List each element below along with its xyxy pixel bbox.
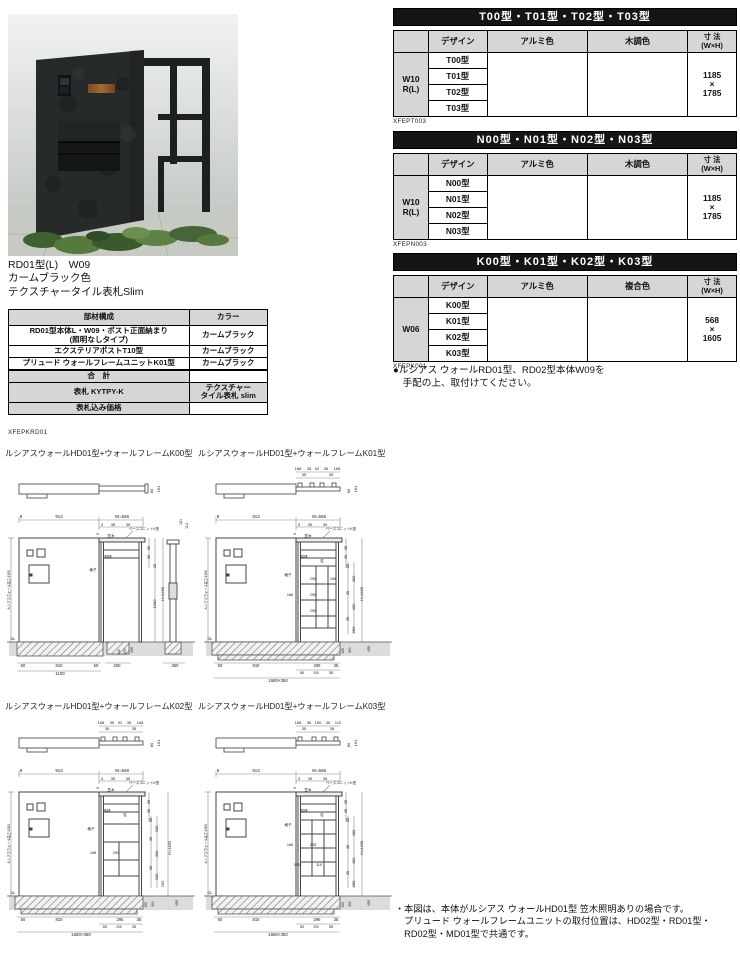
dimension-label: 35 [346, 564, 350, 568]
dimension-label: 913 [252, 768, 260, 773]
frame-elevation [99, 792, 145, 896]
dimension-label: 92 [118, 720, 123, 725]
design-cell: T03型 [428, 101, 487, 117]
dimension-label: 50 [300, 670, 305, 675]
stub-header [394, 31, 429, 53]
wall-elevation [216, 538, 296, 642]
catalog-page: RD01型(L) W09 カームブラック色 テクスチャータイル表札Slim 部材… [0, 0, 740, 980]
dimension-label: 35 [308, 522, 313, 527]
dimension-label: GL [207, 891, 212, 895]
spec-table-t: T00型・T01型・T02型・T03型 デザイン アルミ色 木調色 寸 法 (W… [393, 8, 737, 125]
dimension-label: 161 [179, 519, 183, 525]
dimension-label: 295 [314, 917, 322, 922]
dimension-label: 9 [20, 768, 23, 773]
table-row: プリュード ウォールフレームユニットK01型 カームブラック [9, 358, 268, 370]
dimension-label: 35 [147, 555, 151, 559]
product-caption: RD01型(L) W09 カームブラック色 テクスチャータイル表札Slim [8, 259, 144, 299]
dimension-label: 168 [137, 720, 144, 725]
dimension-label: 50 [218, 917, 223, 922]
total-label: 合 計 [9, 370, 190, 382]
dimension-label: 913 [252, 514, 260, 519]
dimension-label: W=568 [115, 514, 130, 519]
handling-note: ●ルシアス ウォールRD01型、RD02型本体W09を 手配の上、取付けてくださ… [393, 365, 737, 391]
dimension-label: H=1465 [160, 586, 165, 601]
col-header-composite: 複合色 [587, 276, 687, 298]
part-name: エクステリアポストT10型 [9, 346, 190, 358]
wood-color-cell [587, 176, 687, 240]
dimension-label: 35 [330, 726, 335, 731]
table-row: エクステリアポストT10型 カームブラック [9, 346, 268, 358]
dimension-label: 450 [130, 647, 134, 653]
design-cell: T00型 [428, 53, 487, 69]
dimension-label: 400 [351, 829, 356, 836]
dimension-label: 810 [56, 663, 64, 668]
dimension-label: 168 [330, 577, 336, 581]
table-row: W10 R(L) T00型 1185 × 1785 [394, 53, 737, 69]
dimension-label: 35 [147, 546, 151, 550]
wall-elevation [19, 792, 99, 896]
design-cell: N00型 [428, 176, 487, 192]
product-photo-scene [8, 14, 238, 256]
spec-title: T00型・T01型・T02型・T03型 [393, 8, 737, 26]
plate-color: テクスチャー タイル表札 slim [189, 382, 267, 402]
dimension-label: 400 [351, 603, 356, 610]
dimension-label: 3 [298, 522, 301, 527]
dimension-label: 35 [346, 818, 350, 822]
spec-table-code: XFEPT003 [393, 118, 737, 125]
dimension-label: 168 [287, 843, 293, 847]
wall-elevation [216, 792, 296, 896]
dimension-label: 205 [313, 671, 319, 675]
dimension-label: 161 [156, 485, 161, 492]
dimension-label: ルシアスウォール高さ:1500 [6, 570, 11, 610]
col-header-alumi: アルミ色 [487, 276, 587, 298]
size-cell: 568 × 1605 [688, 298, 737, 362]
dimension-label: 柱 [123, 812, 127, 817]
dimension-label: 笠木 [107, 787, 115, 792]
row-header: W10 R(L) [394, 176, 429, 240]
dimension-label: 810 [253, 917, 261, 922]
dimension-label: 161 [353, 739, 358, 746]
dimension-label: 格子 [284, 572, 292, 577]
stub-header [394, 154, 429, 176]
price-label: 表札込み価格 [9, 403, 190, 415]
drawing-title: ルシアスウォールHD01型+ウォールフレームK02型 [5, 700, 192, 712]
part-color: カームブラック [189, 326, 267, 346]
dimension-label: 1680×350 [71, 932, 91, 937]
dimension-label: 260 [351, 880, 356, 887]
dimension-label: 450 [175, 900, 179, 906]
dimension-label: ベースユニットK型 [326, 780, 357, 785]
dimension-label: 笠木 [304, 787, 312, 792]
dimension-label: 1100 [55, 671, 65, 676]
wood-color-cell [587, 53, 687, 117]
spec-table-k: K00型・K01型・K02型・K03型 デザイン アルミ色 複合色 寸 法 (W… [393, 253, 737, 370]
foundations [212, 642, 340, 660]
design-cell: K02型 [428, 330, 487, 346]
dimension-label: 50 [21, 663, 26, 668]
dimension-label: 3 [298, 776, 301, 781]
row-header: W10 R(L) [394, 53, 429, 117]
dimension-label: 35 [344, 546, 348, 550]
design-cell: K01型 [428, 314, 487, 330]
dimension-label: 350 [348, 647, 352, 653]
dimension-label: 格子 [87, 826, 95, 831]
technical-drawing-k03: 16835150351103535801619913W=568335359ベース… [200, 712, 395, 952]
col-header-design: デザイン [428, 154, 487, 176]
dimension-label: 400 [351, 575, 356, 582]
dimension-label: 35 [334, 663, 339, 668]
dimension-label: 35 [132, 924, 137, 929]
technical-drawing-k00: 801619913W=568335359ベースユニットK型笠木縦桟格子35353… [3, 458, 198, 698]
dimension-label: 400 [351, 857, 356, 864]
dimension-label: 50 [103, 924, 108, 929]
dimension-label: ルシアスウォール高さ:1500 [203, 824, 208, 864]
dimension-label: 295 [310, 592, 317, 597]
design-cell: N02型 [428, 208, 487, 224]
dimension-label: W=568 [115, 768, 130, 773]
dimension-label: 200 [154, 825, 159, 832]
dimension-label: 35 [302, 472, 307, 477]
spec-table: デザイン アルミ色 木調色 寸 法 (W×H) W10 R(L) T00型 11… [393, 30, 737, 117]
dimension-label: 35 [346, 617, 350, 621]
dimension-label: H=1465 [359, 840, 364, 855]
plan-view [19, 737, 143, 752]
dimension-label: 100 [341, 648, 345, 654]
dimension-label: 80 [149, 742, 154, 747]
part-name: プリュード ウォールフレームユニットK01型 [9, 358, 190, 370]
dimension-label: 50 [218, 663, 223, 668]
price-value [189, 403, 267, 415]
dimension-label: 810 [253, 663, 261, 668]
dimension-label: 1680×350 [268, 678, 288, 683]
dimension-label: 35 [329, 924, 334, 929]
caption-line-3: テクスチャータイル表札Slim [8, 286, 144, 299]
table-row: 合 計 [9, 370, 268, 382]
technical-drawing-k01: 1683592351683535801619913W=568335359ベースユ… [200, 458, 395, 698]
dimension-label: H=1465 [167, 840, 172, 855]
table-row: W06 K00型 568 × 1605 [394, 298, 737, 314]
caption-line-2: カームブラック色 [8, 272, 144, 285]
plan-view [216, 737, 340, 752]
dimension-label: 9 [96, 787, 100, 789]
dimension-label: 260 [160, 880, 165, 887]
parts-header-color: カラー [189, 310, 267, 326]
dimension-label: 35 [149, 818, 153, 822]
dimension-label: 格子 [284, 822, 292, 827]
alumi-color-cell [487, 298, 587, 362]
col-header-size: 寸 法 (W×H) [688, 31, 737, 53]
dimension-label: 35 [302, 726, 307, 731]
dimension-label: GL [10, 891, 15, 895]
plate-name: 表札 KYTPY-K [9, 382, 190, 402]
dimension-label: 柱 [320, 812, 324, 817]
dimension-label: ベースユニットK型 [129, 780, 160, 785]
dimension-label: 35 [137, 917, 142, 922]
dimension-label: 35 [346, 845, 350, 849]
part-name: RD01型本体L・W09・ポスト正面納まり (照明なしタイプ) [9, 326, 190, 346]
design-cell: T02型 [428, 85, 487, 101]
design-cell: T01型 [428, 69, 487, 85]
dimension-label: 35 [324, 466, 329, 471]
dimension-label: 1680×350 [268, 932, 288, 937]
dimension-label: 笠木 [107, 533, 115, 538]
dimension-label: 35 [344, 800, 348, 804]
dimension-label: W=568 [312, 514, 327, 519]
dimension-label: 35 [344, 555, 348, 559]
foundations [212, 896, 340, 914]
dimension-label: 9 [217, 514, 220, 519]
dimension-label: 350 [123, 648, 127, 654]
dimension-label: 161 [353, 485, 358, 492]
dimension-label: 168 [98, 720, 105, 725]
dimension-label: 400 [154, 850, 159, 857]
parts-header-composition: 部材構成 [9, 310, 190, 326]
dimension-label: 450 [367, 900, 371, 906]
dimension-label: 50 [300, 924, 305, 929]
spec-table: デザイン アルミ色 木調色 寸 法 (W×H) W10 R(L) N00型 11… [393, 153, 737, 240]
dimension-label: 35 [308, 776, 313, 781]
dimension-label: 200 [154, 873, 159, 880]
dimension-label: 114 [185, 523, 189, 529]
dimension-label: 295 [310, 608, 317, 613]
frame-elevation [296, 538, 342, 642]
dimension-label: 35 [307, 720, 312, 725]
spec-table-code: XFEPN003 [393, 241, 737, 248]
dimension-label: 35 [111, 522, 116, 527]
dimension-label: W=568 [312, 768, 327, 773]
dimension-label: 縦桟 [103, 808, 111, 813]
dimension-label: 9 [217, 768, 220, 773]
dimension-label: 150 [294, 863, 300, 867]
parts-composition-table: 部材構成 カラー RD01型本体L・W09・ポスト正面納まり (照明なしタイプ)… [8, 309, 268, 415]
dimension-label: 295 [314, 663, 322, 668]
dimension-label: 80 [346, 488, 351, 493]
dimension-label: 913 [55, 768, 63, 773]
frame-elevation [296, 792, 342, 896]
dimension-label: 205 [313, 925, 319, 929]
footer-note: ・本図は、本体がルシアス ウォールHD01型 笠木照明ありの場合です。 プリュー… [395, 903, 737, 940]
dimension-label: 35 [326, 720, 331, 725]
col-header-wood: 木調色 [587, 31, 687, 53]
dimension-label: 50 [94, 663, 99, 668]
dimension-label: ルシアスウォール高さ:1500 [203, 570, 208, 610]
dimension-label: 35 [149, 866, 153, 870]
dimension-label: 3 [101, 522, 104, 527]
dimension-label: 80 [149, 488, 154, 493]
dimension-label: 350 [172, 663, 180, 668]
table-row: RD01型本体L・W09・ポスト正面納まり (照明なしタイプ) カームブラック [9, 326, 268, 346]
foundations [15, 896, 143, 914]
dimension-label: ベースユニットK型 [129, 526, 160, 531]
dimension-label: 168 [90, 851, 96, 855]
dimension-label: 295 [310, 842, 317, 847]
dimension-label: 35 [329, 670, 334, 675]
plan-view [19, 484, 148, 498]
intercom-unit [58, 75, 71, 96]
dimension-label: 35 [105, 726, 110, 731]
wall-elevation [19, 538, 99, 642]
dimension-label: 35 [346, 871, 350, 875]
dimension-label: 150 [315, 720, 322, 725]
spec-title: N00型・N01型・N02型・N03型 [393, 131, 737, 149]
size-cell: 1185 × 1785 [688, 53, 737, 117]
nameplate [88, 84, 115, 93]
dimension-label: 3 [101, 776, 104, 781]
dimension-label: 35 [307, 466, 312, 471]
col-header-size: 寸 法 (W×H) [688, 154, 737, 176]
dimension-label: 168 [295, 720, 302, 725]
dimension-label: 100 [341, 902, 345, 908]
dimension-label: 80 [346, 742, 351, 747]
dimension-label: 295 [310, 576, 317, 581]
dimension-label: 161 [156, 739, 161, 746]
dimension-label: 縦桟 [300, 554, 308, 559]
alumi-color-cell [487, 176, 587, 240]
dimension-label: 9 [293, 787, 297, 789]
dimension-label: 168 [334, 466, 341, 471]
dimension-label: 35 [110, 720, 115, 725]
table-row: 表札 KYTPY-K テクスチャー タイル表札 slim [9, 382, 268, 402]
dimension-label: 350 [151, 901, 155, 907]
dimension-label: 縦桟 [104, 554, 112, 559]
dimension-label: 35 [334, 917, 339, 922]
dimension-label: 250 [114, 663, 122, 668]
spec-table: デザイン アルミ色 複合色 寸 法 (W×H) W06 K00型 568 × 1… [393, 275, 737, 362]
part-color: カームブラック [189, 346, 267, 358]
col-header-design: デザイン [428, 31, 487, 53]
spec-table-n: N00型・N01型・N02型・N03型 デザイン アルミ色 木調色 寸 法 (W… [393, 131, 737, 248]
dimension-label: 168 [287, 593, 293, 597]
dimension-label: 260 [351, 626, 356, 633]
dimension-label: ルシアスウォール高さ:1500 [6, 824, 11, 864]
dimension-label: 35 [127, 720, 132, 725]
dimension-label: 450 [367, 646, 371, 652]
dimension-label: 100 [144, 902, 148, 908]
dimension-label: 縦桟 [300, 808, 308, 813]
design-cell: K03型 [428, 346, 487, 362]
dimension-label: 35 [329, 472, 334, 477]
dimension-label: 295 [113, 850, 120, 855]
total-value [189, 370, 267, 382]
col-header-alumi: アルミ色 [487, 154, 587, 176]
dimension-label: 35 [346, 591, 350, 595]
dimension-label: GL [207, 637, 212, 641]
dimension-label: 92 [315, 466, 320, 471]
dimension-label: H=1465 [359, 586, 364, 601]
dimension-label: 35 [153, 564, 157, 568]
dimension-label: 110 [335, 720, 342, 725]
dimension-label: 100 [117, 649, 121, 655]
col-header-design: デザイン [428, 276, 487, 298]
dimension-label: 35 [149, 837, 153, 841]
composite-color-cell [587, 298, 687, 362]
dimension-label: 205 [116, 925, 122, 929]
row-header: W06 [394, 298, 429, 362]
dimension-label: 35 [132, 726, 137, 731]
dimension-label: 9 [96, 533, 100, 535]
design-cell: K00型 [428, 298, 487, 314]
col-header-size: 寸 法 (W×H) [688, 276, 737, 298]
caption-line-1: RD01型(L) W09 [8, 259, 144, 272]
drawing-title: ルシアスウォールHD01型+ウォールフレームK03型 [198, 700, 385, 712]
dimension-label: 1060 [152, 599, 157, 609]
dimension-label: 柱 [320, 558, 324, 563]
dimension-label: 350 [348, 901, 352, 907]
dimension-label: GL [10, 637, 15, 641]
dimension-label: 168 [295, 466, 302, 471]
dimension-label: 35 [147, 809, 151, 813]
dimension-label: 35 [147, 800, 151, 804]
dimension-label: 9 [20, 514, 23, 519]
design-cell: N03型 [428, 224, 487, 240]
product-photo [8, 14, 238, 256]
stub-header [394, 276, 429, 298]
dimension-label: 50 [21, 917, 26, 922]
dimension-label: 913 [55, 514, 63, 519]
side-view [167, 540, 179, 642]
design-cell: N01型 [428, 192, 487, 208]
size-cell: 1185 × 1785 [688, 176, 737, 240]
col-header-wood: 木調色 [587, 154, 687, 176]
dimension-label: 9 [293, 533, 297, 535]
dimension-label: 110 [316, 863, 322, 867]
dimension-label: 35 [344, 809, 348, 813]
alumi-color-cell [487, 53, 587, 117]
part-color: カームブラック [189, 358, 267, 370]
table-row: W10 R(L) N00型 1185 × 1785 [394, 176, 737, 192]
dimension-label: 笠木 [304, 533, 312, 538]
spec-title: K00型・K01型・K02型・K03型 [393, 253, 737, 271]
plan-view [216, 483, 340, 498]
dimension-label: 295 [117, 917, 125, 922]
col-header-alumi: アルミ色 [487, 31, 587, 53]
dimension-label: ベースユニットK型 [326, 526, 357, 531]
technical-drawing-k02: 1683592351683535801619913W=568335359ベースユ… [3, 712, 198, 952]
frame-elevation [99, 538, 145, 642]
parts-table-code: XFEPKRD01 [8, 429, 47, 436]
dimension-label: 35 [111, 776, 116, 781]
mailbox [58, 121, 120, 171]
table-row: 表札込み価格 [9, 403, 268, 415]
dimension-label: 810 [56, 917, 64, 922]
dimension-label: 格子 [89, 567, 97, 572]
